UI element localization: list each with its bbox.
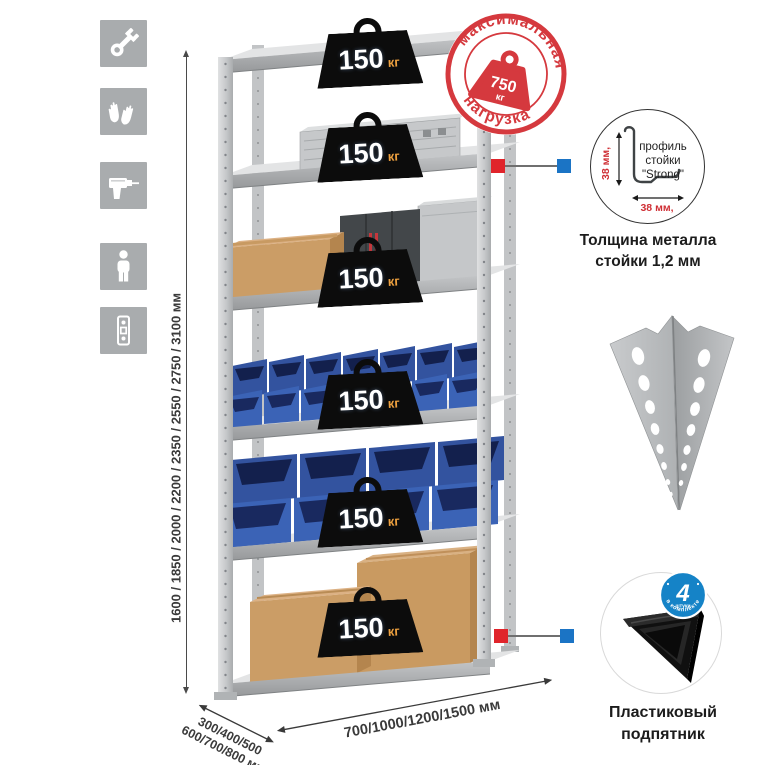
post-profile-detail: 38 мм, 38 мм, профиль стойки "Strong" bbox=[590, 109, 705, 224]
work-gloves-icon bbox=[100, 88, 147, 135]
weight-body: 150кг bbox=[315, 370, 424, 429]
shelf-load-value: 150 bbox=[338, 43, 385, 76]
weight-body: 150кг bbox=[315, 123, 424, 182]
product-infographic: 1600 / 1850 / 2000 / 2200 / 2350 / 2550 … bbox=[0, 0, 765, 765]
drill-icon bbox=[100, 162, 147, 209]
perforated-angle-post-image bbox=[600, 298, 740, 518]
shelf-load-badge: 150кг bbox=[315, 370, 424, 429]
shelf-load-unit: кг bbox=[387, 45, 400, 70]
shelf-load-value: 150 bbox=[338, 502, 385, 535]
shelf-load-badge: 150кг bbox=[315, 123, 424, 182]
shelf-load-value: 150 bbox=[338, 137, 385, 170]
shelf-load-badge: 150кг bbox=[315, 488, 424, 547]
person-height-icon bbox=[100, 243, 147, 290]
perforated-profile-icon bbox=[100, 307, 147, 354]
post-callout-marker-red bbox=[491, 159, 505, 173]
foot-caption-line1: Пластиковый bbox=[583, 702, 743, 724]
weight-body: 150кг bbox=[315, 598, 424, 657]
wrench-icon bbox=[100, 20, 147, 67]
shelf-load-badge: 150кг bbox=[315, 248, 424, 307]
foot-caption: Пластиковый подпятник bbox=[583, 702, 743, 746]
weight-body: 150кг bbox=[315, 248, 424, 307]
weight-body: 150кг bbox=[315, 29, 424, 88]
profile-caption-line2: стойки 1,2 мм bbox=[568, 251, 728, 272]
post-callout-marker-blue bbox=[557, 159, 571, 173]
shelf-load-unit: кг bbox=[387, 386, 400, 411]
foot-callout-marker-blue bbox=[560, 629, 574, 643]
shelf-load-unit: кг bbox=[387, 614, 400, 639]
callout-line bbox=[505, 165, 557, 167]
shelf-load-unit: кг bbox=[387, 504, 400, 529]
profile-label-1: профиль bbox=[639, 141, 687, 153]
profile-caption-line1: Толщина металла bbox=[568, 230, 728, 251]
shelf-load-badge: 150кг bbox=[315, 598, 424, 657]
profile-caption: Толщина металла стойки 1,2 мм bbox=[568, 230, 728, 272]
profile-label-2: стойки bbox=[645, 155, 680, 167]
shelf-load-unit: кг bbox=[387, 139, 400, 164]
profile-label-3: "Strong" bbox=[642, 169, 684, 181]
shelf-load-value: 150 bbox=[338, 612, 385, 645]
foot-caption-line2: подпятник bbox=[583, 724, 743, 746]
shelf-load-value: 150 bbox=[338, 384, 385, 417]
callout-line bbox=[508, 635, 560, 637]
quantity-badge: 4 штуки в комплекте bbox=[658, 570, 708, 620]
profile-vertical-dim: 38 мм, bbox=[600, 147, 612, 180]
foot-callout-marker-red bbox=[494, 629, 508, 643]
profile-horizontal-dim: 38 мм, bbox=[640, 202, 673, 214]
shelf-load-unit: кг bbox=[387, 264, 400, 289]
shelf-load-value: 150 bbox=[338, 262, 385, 295]
shelf-load-badge: 150кг bbox=[315, 29, 424, 88]
weight-body: 150кг bbox=[315, 488, 424, 547]
